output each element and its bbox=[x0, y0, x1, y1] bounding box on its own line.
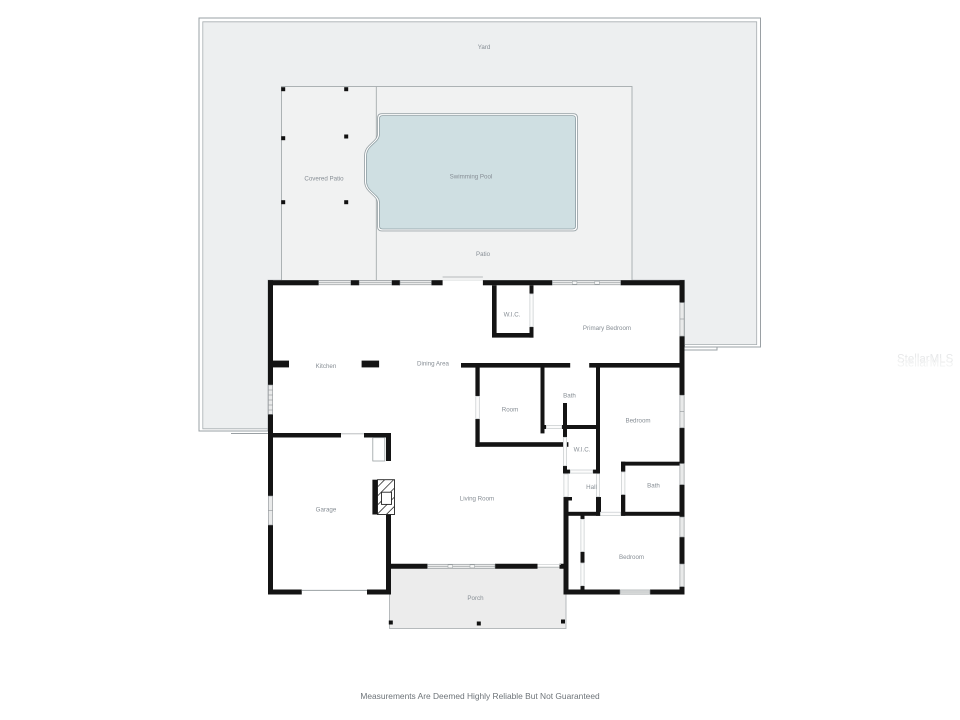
svg-text:Yard: Yard bbox=[478, 44, 491, 51]
svg-text:Garage: Garage bbox=[316, 507, 337, 514]
svg-text:Measurements Are Deemed Highly: Measurements Are Deemed Highly Reliable … bbox=[360, 691, 600, 701]
svg-text:Kitchen: Kitchen bbox=[316, 363, 337, 370]
svg-text:Bedroom: Bedroom bbox=[619, 554, 644, 561]
svg-text:Living Room: Living Room bbox=[460, 496, 494, 503]
svg-text:Hall: Hall bbox=[586, 484, 597, 491]
svg-text:Room: Room bbox=[502, 407, 519, 414]
svg-text:Primary Bedroom: Primary Bedroom bbox=[583, 325, 631, 332]
svg-text:Patio: Patio bbox=[476, 251, 491, 258]
svg-text:Swimming Pool: Swimming Pool bbox=[450, 174, 493, 181]
svg-text:W.I.C.: W.I.C. bbox=[504, 312, 521, 319]
svg-text:Dining Area: Dining Area bbox=[417, 361, 450, 368]
svg-text:Porch: Porch bbox=[467, 595, 484, 602]
svg-text:Bath: Bath bbox=[647, 483, 660, 490]
svg-text:Bath: Bath bbox=[563, 393, 576, 400]
svg-text:W.I.C.: W.I.C. bbox=[574, 447, 591, 454]
svg-text:StellarMLS: StellarMLS bbox=[897, 358, 954, 370]
svg-text:Covered Patio: Covered Patio bbox=[304, 176, 344, 183]
svg-text:Bedroom: Bedroom bbox=[625, 418, 650, 425]
